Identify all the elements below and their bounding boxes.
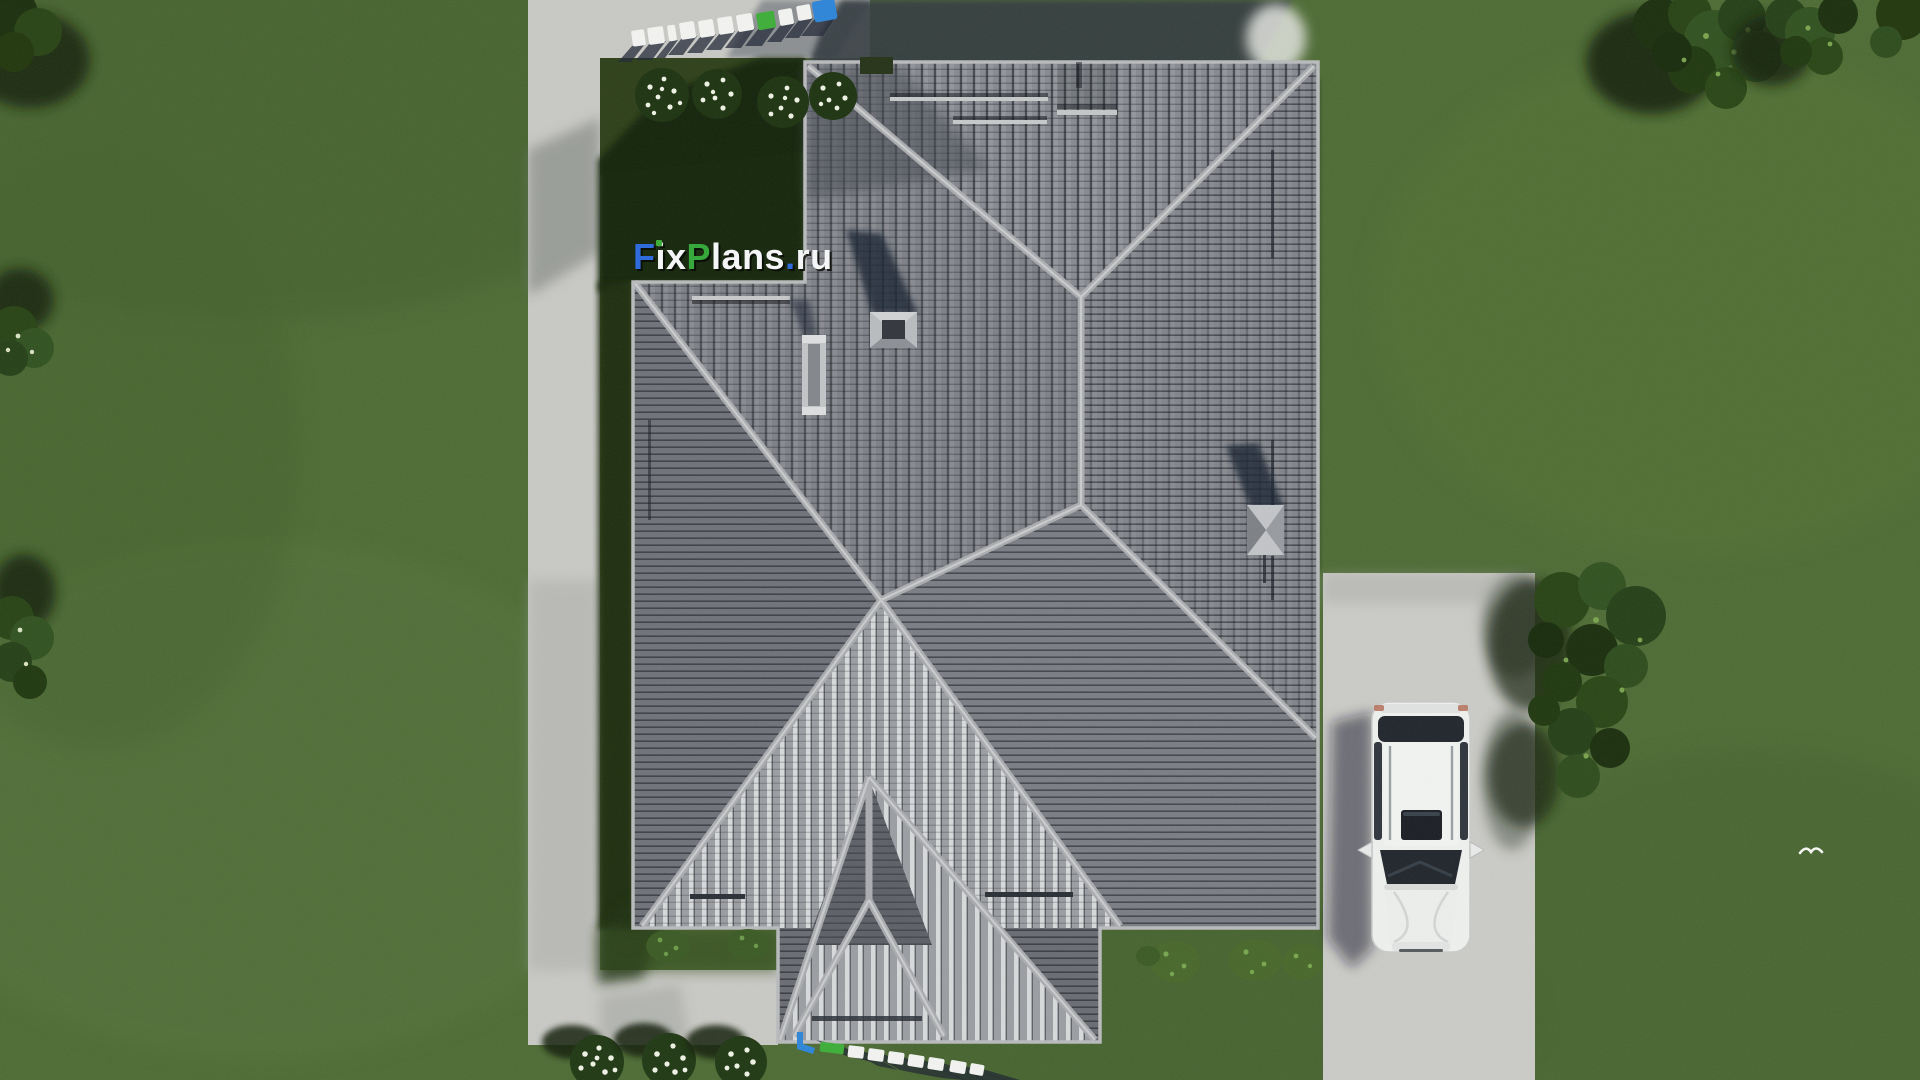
grain-overlay [0,0,1920,1080]
logo-i-dot [656,240,662,246]
render-canvas: FixPlans.ru FixPlans.ru [0,0,1920,1080]
watermark-logo: FixPlans.ru FixPlans.ru [633,236,835,279]
logo-text: FixPlans.ru [633,236,833,277]
aerial-scene: FixPlans.ru FixPlans.ru [0,0,1920,1080]
